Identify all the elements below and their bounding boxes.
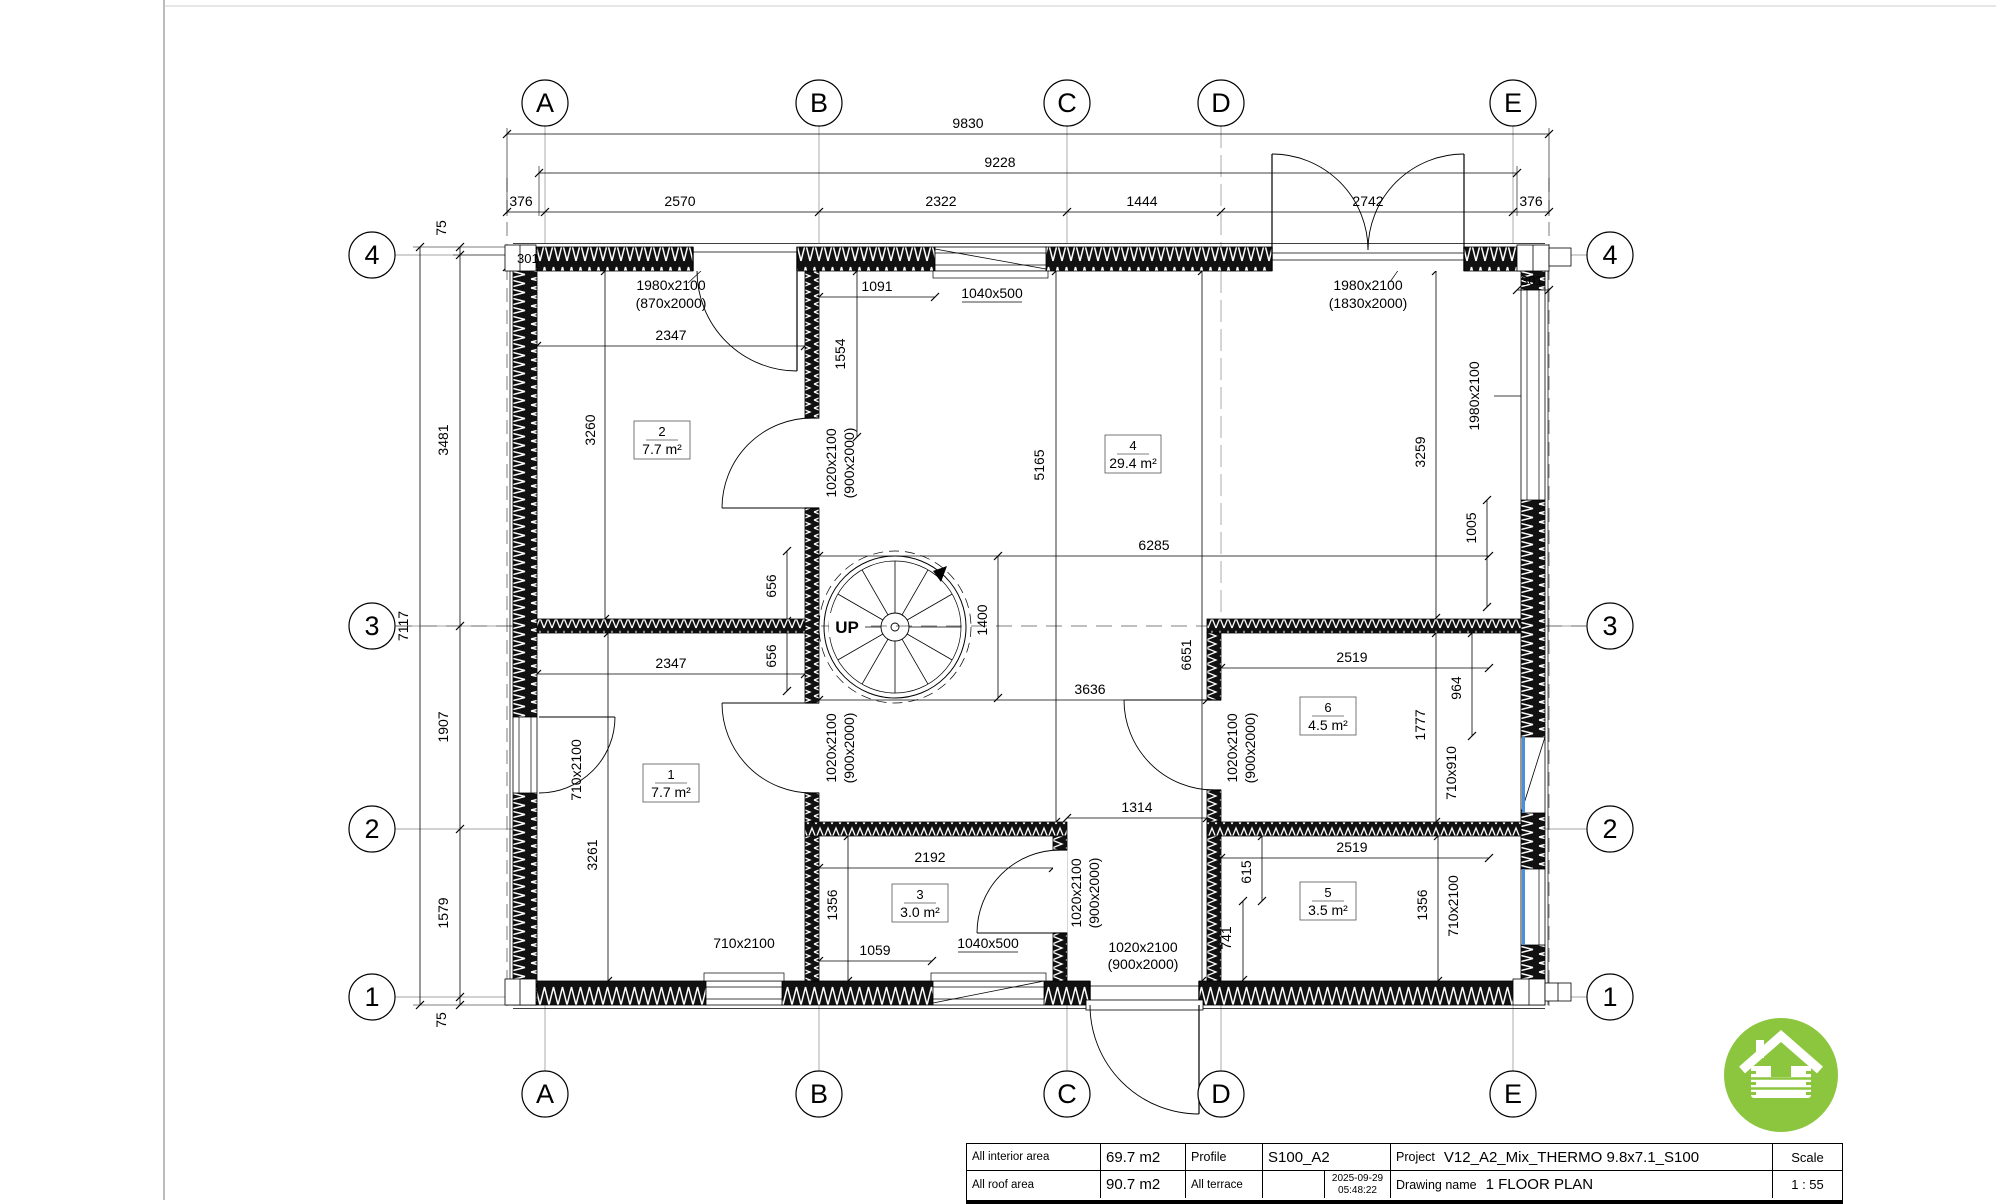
dim-6285: 6285 <box>1138 537 1169 553</box>
roof-area-value-cell: 90.7 m2 <box>1101 1171 1186 1198</box>
label-window-bottom-710: 710x2100 <box>713 935 775 951</box>
grid-bubble-col-b-bottom: B <box>796 1071 842 1117</box>
dim-3260: 3260 <box>582 414 598 445</box>
label-double-door-size: 1980x2100 <box>1333 277 1403 293</box>
grid-bubble-col-d-top: D <box>1198 80 1244 126</box>
label-door-room3-leaf: (900x2000) <box>1086 858 1102 929</box>
grid-bubble-row-3-left: 3 <box>349 603 395 649</box>
svg-text:1: 1 <box>364 982 379 1012</box>
room-label-5: 5 3.5 m² <box>1300 882 1356 920</box>
dim-376-left: 376 <box>509 193 533 209</box>
svg-text:B: B <box>810 88 828 118</box>
label-window-room5-710: 710x2100 <box>1445 875 1461 937</box>
dim-1091: 1091 <box>861 278 892 294</box>
svg-text:B: B <box>810 1079 828 1109</box>
entry-door-top-left <box>693 247 797 371</box>
dim-1356-room3: 1356 <box>824 889 840 920</box>
profile-label: Profile <box>1191 1150 1226 1164</box>
dim-2519-room6: 2519 <box>1336 649 1367 665</box>
profile-value: S100_A2 <box>1268 1149 1330 1166</box>
dim-2347-room1: 2347 <box>655 655 686 671</box>
dim-2519-room5: 2519 <box>1336 839 1367 855</box>
drawing-name-cell: Drawing name1 FLOOR PLAN <box>1391 1171 1773 1198</box>
room-5-number: 5 <box>1324 885 1331 900</box>
interior-area-label: All interior area <box>972 1151 1049 1163</box>
room-label-2: 2 7.7 m² <box>634 421 690 459</box>
svg-text:3: 3 <box>1602 611 1617 641</box>
title-block: All interior area 69.7 m2 Profile S100_A… <box>966 1143 1843 1204</box>
dim-3259: 3259 <box>1412 436 1428 467</box>
grid-bubble-row-3-right: 3 <box>1587 603 1633 649</box>
svg-text:D: D <box>1211 88 1231 118</box>
stair-up-label: UP <box>835 618 859 637</box>
dim-1777: 1777 <box>1412 709 1428 740</box>
dim-1554: 1554 <box>832 338 848 369</box>
svg-text:E: E <box>1504 1079 1522 1109</box>
timestamp: 2025-09-29 05:48:22 <box>1325 1173 1390 1197</box>
label-entry-door-size: 1980x2100 <box>636 277 706 293</box>
svg-text:4: 4 <box>364 240 379 270</box>
dim-3261: 3261 <box>584 839 600 870</box>
room-3-area: 3.0 m² <box>900 904 940 920</box>
terrace-value-cell: 2025-09-29 05:48:22 <box>1263 1171 1391 1198</box>
window-bottom-1040 <box>931 973 1046 1005</box>
svg-text:2: 2 <box>364 814 379 844</box>
room-6-number: 6 <box>1324 700 1331 715</box>
window-top-1040 <box>933 247 1048 278</box>
svg-text:4: 4 <box>1602 240 1617 270</box>
dim-1579: 1579 <box>435 897 451 928</box>
dim-inner-width: 9228 <box>984 154 1015 170</box>
dim-overall-width: 9830 <box>952 115 983 131</box>
window-right-1980 <box>1521 290 1545 500</box>
dim-1005: 1005 <box>1463 512 1479 543</box>
label-double-door-leaf: (1830x2000) <box>1329 295 1408 311</box>
dim-741: 741 <box>1218 926 1234 950</box>
svg-text:3: 3 <box>364 611 379 641</box>
project-cell: ProjectV12_A2_Mix_THERMO 9.8x7.1_S100 <box>1391 1144 1773 1171</box>
label-door-room1-leaf: (900x2000) <box>841 713 857 784</box>
dim-2570: 2570 <box>664 193 695 209</box>
dim-1314: 1314 <box>1121 799 1152 815</box>
window-left-710 <box>513 717 615 793</box>
terrace-label-cell: All terrace <box>1186 1171 1263 1198</box>
room-2-area: 7.7 m² <box>642 441 682 457</box>
dim-1444: 1444 <box>1126 193 1157 209</box>
roof-area-label-cell: All roof area <box>967 1171 1101 1198</box>
dim-1400: 1400 <box>974 604 990 635</box>
dim-301-left: 301 <box>517 251 539 266</box>
profile-label-cell: Profile <box>1186 1144 1263 1171</box>
dim-2742: 2742 <box>1352 193 1383 209</box>
room-4-number: 4 <box>1129 438 1136 453</box>
grid-bubbles: A B C D E A B C D E 4 3 2 1 4 3 2 1 <box>349 80 1633 1117</box>
dim-6651: 6651 <box>1178 639 1194 670</box>
dim-5165: 5165 <box>1031 449 1047 480</box>
dim-3636: 3636 <box>1074 681 1105 697</box>
svg-text:2: 2 <box>1602 814 1617 844</box>
grid-bubble-row-4-right: 4 <box>1587 232 1633 278</box>
room-labels: 2 7.7 m² 4 29.4 m² 1 7.7 m² 6 4.5 m² 3 3… <box>634 421 1356 922</box>
grid-bubble-row-2-left: 2 <box>349 806 395 852</box>
window-right-710x2100 <box>1521 869 1545 945</box>
svg-text:D: D <box>1211 1079 1231 1109</box>
svg-text:1: 1 <box>1602 982 1617 1012</box>
dim-2347-room2: 2347 <box>655 327 686 343</box>
label-window-710x910: 710x910 <box>1443 746 1459 800</box>
room-1-area: 7.7 m² <box>651 784 691 800</box>
grid-bubble-row-2-right: 2 <box>1587 806 1633 852</box>
dim-656-lower: 656 <box>763 644 779 668</box>
room-label-6: 6 4.5 m² <box>1300 697 1356 735</box>
label-window-top-1040: 1040x500 <box>961 285 1023 301</box>
label-entrance-door-leaf: (900x2000) <box>1108 956 1179 972</box>
room-6-area: 4.5 m² <box>1308 717 1348 733</box>
door-room1 <box>722 703 819 793</box>
dim-3481: 3481 <box>435 424 451 455</box>
room-label-1: 1 7.7 m² <box>643 764 699 802</box>
grid-bubble-row-4-left: 4 <box>349 232 395 278</box>
svg-text:E: E <box>1504 88 1522 118</box>
roof-area-value: 90.7 m2 <box>1106 1176 1160 1193</box>
grid-bubble-col-a-top: A <box>522 80 568 126</box>
dim-75-bottom: 75 <box>433 1012 449 1028</box>
dim-7117: 7117 <box>395 611 411 641</box>
grid-bubble-col-a-bottom: A <box>522 1071 568 1117</box>
grid-bubble-col-c-top: C <box>1044 80 1090 126</box>
door-room6 <box>1124 700 1221 790</box>
dim-1059: 1059 <box>859 942 890 958</box>
dim-615: 615 <box>1238 860 1254 884</box>
door-room2 <box>722 418 819 508</box>
terrace-label: All terrace <box>1191 1179 1243 1191</box>
scale-label: Scale <box>1791 1150 1824 1165</box>
svg-text:C: C <box>1057 88 1077 118</box>
timestamp-date: 2025-09-29 <box>1325 1173 1390 1185</box>
company-logo <box>1724 1018 1838 1132</box>
grid-bubble-col-d-bottom: D <box>1198 1071 1244 1117</box>
profile-value-cell: S100_A2 <box>1263 1144 1391 1171</box>
timestamp-time: 05:48:22 <box>1325 1185 1390 1197</box>
project-value: V12_A2_Mix_THERMO 9.8x7.1_S100 <box>1444 1149 1699 1166</box>
roof-area-label: All roof area <box>972 1179 1034 1191</box>
label-door-room6-leaf: (900x2000) <box>1242 713 1258 784</box>
drawing-name-value: 1 FLOOR PLAN <box>1486 1176 1594 1193</box>
room-3-number: 3 <box>916 887 923 902</box>
label-door-room2-size: 1020x2100 <box>823 428 839 498</box>
dim-301-right: 301 <box>1521 273 1543 288</box>
label-entry-door-leaf: (870x2000) <box>636 295 707 311</box>
svg-text:A: A <box>536 1079 554 1109</box>
label-window-bottom-1040: 1040x500 <box>957 935 1019 951</box>
drawing-name-label: Drawing name <box>1396 1178 1477 1192</box>
floor-plan-drawing: UP 2 7.7 m² 4 29.4 m² 1 7.7 m² 6 4.5 m² <box>0 0 2000 1200</box>
label-window-right-1980: 1980x2100 <box>1466 361 1482 431</box>
svg-text:A: A <box>536 88 554 118</box>
grid-bubble-row-1-left: 1 <box>349 974 395 1020</box>
scale-label-cell: Scale <box>1773 1144 1842 1171</box>
label-door-room1-size: 1020x2100 <box>823 713 839 783</box>
dim-75-top: 75 <box>433 220 449 236</box>
label-door-room2-leaf: (900x2000) <box>841 428 857 499</box>
terrace-value <box>1263 1171 1325 1198</box>
grid-bubble-col-e-bottom: E <box>1490 1071 1536 1117</box>
interior-area-label-cell: All interior area <box>967 1144 1101 1171</box>
grid-bubble-col-e-top: E <box>1490 80 1536 126</box>
window-right-710x910 <box>1521 737 1545 813</box>
window-bottom-710 <box>704 973 784 1005</box>
scale-value-cell: 1 : 55 <box>1773 1171 1842 1198</box>
dim-2192: 2192 <box>914 849 945 865</box>
room-2-number: 2 <box>658 424 665 439</box>
room-label-4: 4 29.4 m² <box>1105 435 1161 473</box>
grid-bubble-col-b-top: B <box>796 80 842 126</box>
room-5-area: 3.5 m² <box>1308 902 1348 918</box>
room-4-area: 29.4 m² <box>1109 455 1157 471</box>
room-label-3: 3 3.0 m² <box>892 884 948 922</box>
svg-text:C: C <box>1057 1079 1077 1109</box>
grid-bubble-row-1-right: 1 <box>1587 974 1633 1020</box>
dim-376-right: 376 <box>1519 193 1543 209</box>
dim-964: 964 <box>1448 676 1464 700</box>
project-label: Project <box>1396 1150 1435 1164</box>
label-door-room3-size: 1020x2100 <box>1068 858 1084 928</box>
scale-value: 1 : 55 <box>1791 1177 1824 1192</box>
entrance-door-bottom <box>1086 981 1203 1114</box>
grid-bubble-col-c-bottom: C <box>1044 1071 1090 1117</box>
dim-656-upper: 656 <box>763 574 779 598</box>
label-door-room6-size: 1020x2100 <box>1224 713 1240 783</box>
label-window-left-710: 710x2100 <box>568 739 584 801</box>
door-room3 <box>977 850 1067 933</box>
dim-1356-room5: 1356 <box>1414 889 1430 920</box>
room-1-number: 1 <box>667 767 674 782</box>
walls <box>505 244 1571 1009</box>
label-entrance-door-size: 1020x2100 <box>1108 939 1178 955</box>
interior-area-value-cell: 69.7 m2 <box>1101 1144 1186 1171</box>
interior-area-value: 69.7 m2 <box>1106 1149 1160 1166</box>
dim-2322: 2322 <box>925 193 956 209</box>
double-door-top-right <box>1272 154 1464 271</box>
dim-1907: 1907 <box>435 711 451 742</box>
